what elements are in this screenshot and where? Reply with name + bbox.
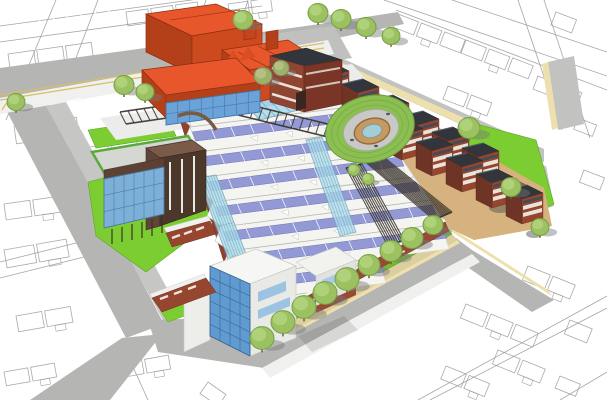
site-rendering-svg (0, 0, 607, 400)
architectural-site-rendering (0, 0, 607, 400)
chimney (266, 30, 278, 50)
arched-entrance (296, 90, 306, 111)
